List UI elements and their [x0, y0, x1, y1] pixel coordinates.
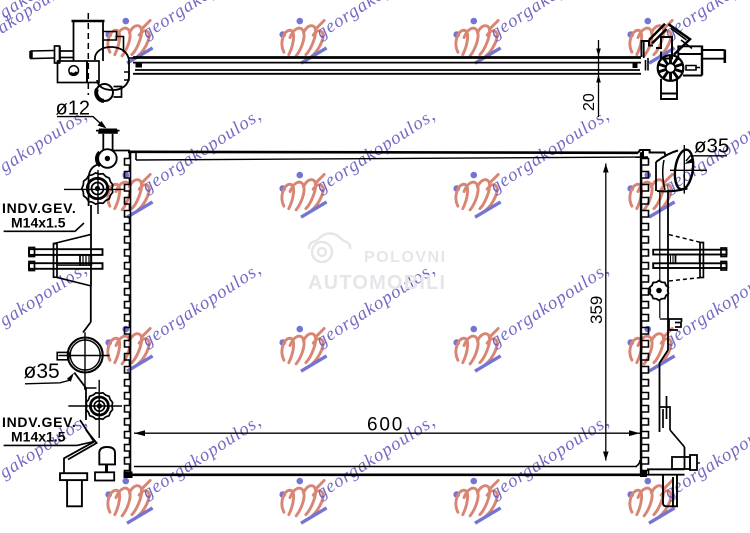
- svg-text:20: 20: [581, 93, 598, 111]
- svg-text:359: 359: [587, 296, 606, 324]
- svg-text:ø35: ø35: [694, 135, 729, 158]
- svg-text:M14x1.5: M14x1.5: [11, 429, 66, 445]
- svg-text:POLOVNI: POLOVNI: [364, 249, 447, 266]
- svg-text:600: 600: [367, 415, 404, 436]
- svg-text:ø35: ø35: [24, 360, 60, 383]
- svg-text:M14x1.5: M14x1.5: [11, 215, 66, 231]
- svg-text:AUTOMOBILI: AUTOMOBILI: [308, 272, 446, 294]
